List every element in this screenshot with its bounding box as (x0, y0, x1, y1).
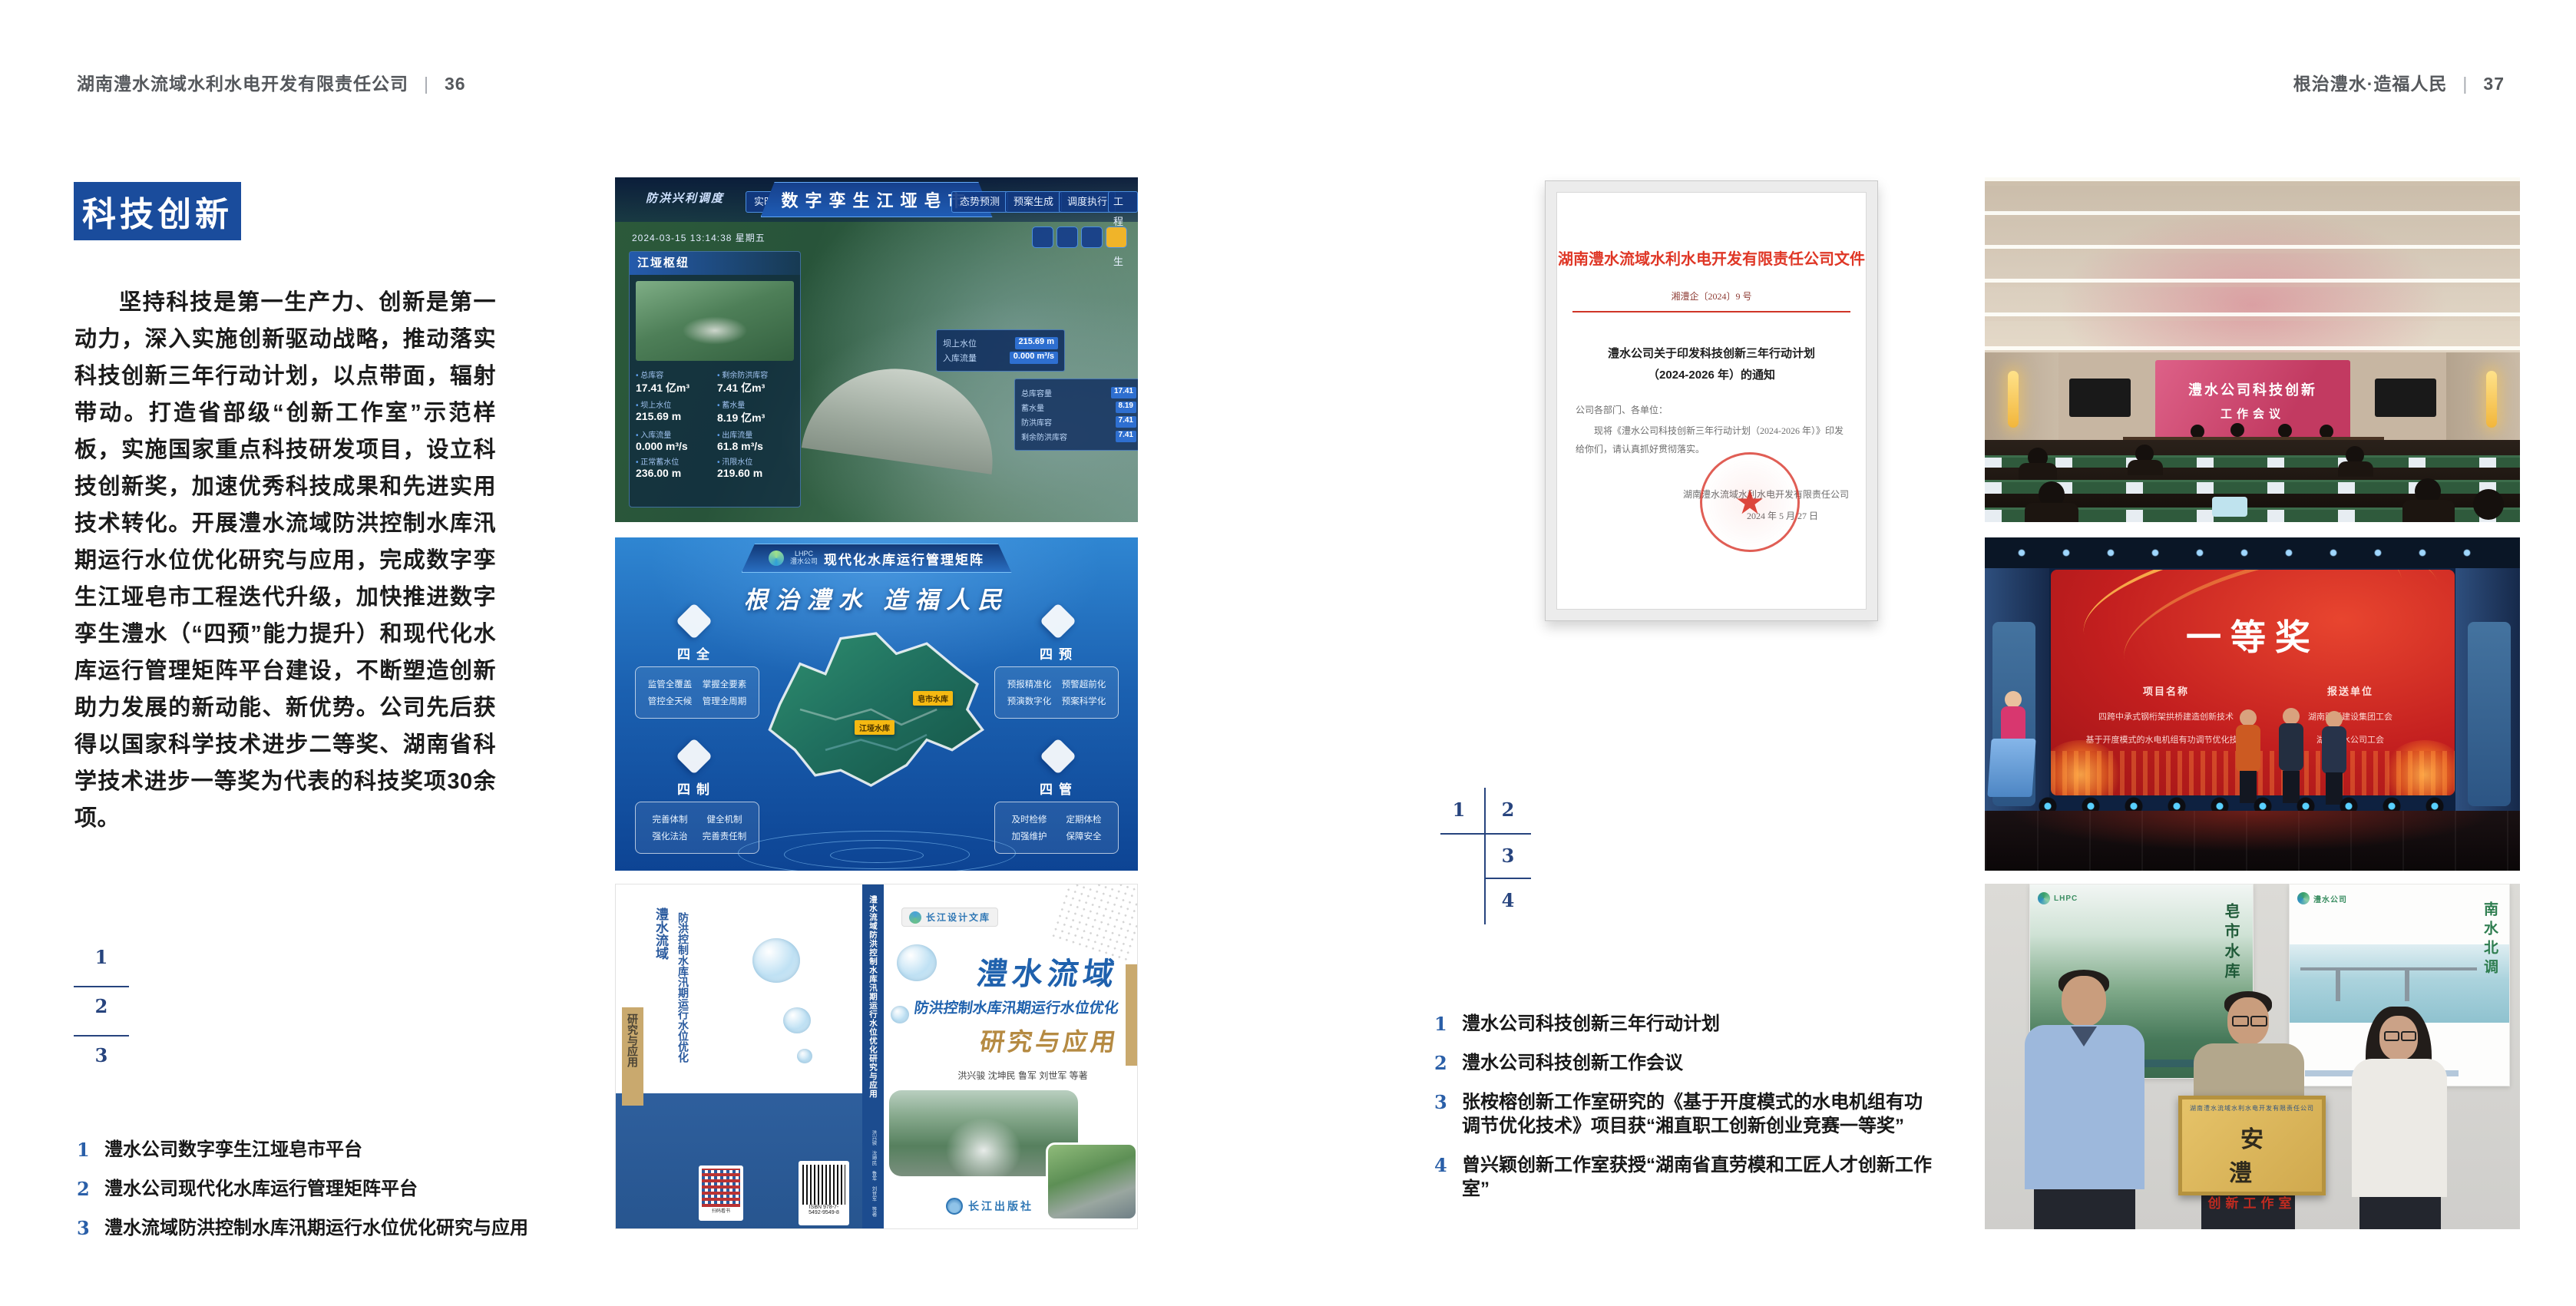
lhpc-logo-icon (2297, 892, 2310, 904)
header-separator: | (2462, 74, 2468, 94)
glasses-icon (2250, 1016, 2267, 1027)
publisher-icon (946, 1198, 963, 1215)
caption-row: 3 张桉榕创新工作室研究的《基于开度模式的水电机组有功调节优化技术》项目获“湘直… (1434, 1090, 1953, 1138)
award-col-header: 报送单位 (2258, 683, 2442, 698)
document-title: 澧水公司关于印发科技创新三年行动计划（2024-2026 年）的通知 (1557, 343, 1866, 386)
document-body: 现将《澧水公司科技创新三年行动计划（2024-2026 年）》印发给你们，请认真… (1576, 422, 1847, 458)
matrix-group-name: 四制 (650, 779, 742, 798)
poster-bridge-deck (2300, 967, 2477, 970)
caption-row: 1 澧水公司科技创新三年行动计划 (1434, 1012, 1953, 1036)
meeting-ceiling (1985, 177, 2520, 360)
caption-row: 2 澧水公司科技创新工作会议 (1434, 1051, 1953, 1075)
platform-title: 数字孪生江垭皂市 (781, 187, 971, 212)
photo-book-cover: 澧水流域 防洪控制水库汛期运行水位优化 研究与应用 扫码看书 ISBN 978-… (615, 884, 1138, 1229)
awardee-head (2283, 708, 2300, 725)
map-label: 江垭水库 (855, 720, 894, 735)
company-seal: ★ (1700, 452, 1800, 552)
platform-timestamp: 2024-03-15 13:14:38 星期五 (632, 231, 766, 244)
lhpc-logo-icon (2038, 892, 2050, 904)
stat-item: 出库流量61.8 m³/s (717, 428, 794, 452)
document-number: 湘澧企〔2024〕9 号 (1557, 289, 1866, 303)
awardee-body-suit (2322, 726, 2346, 774)
person-pants (2034, 1189, 2135, 1229)
figure-index-divider (74, 1035, 129, 1037)
matrix-group-card: 及时检修定期体检 加强维护保障安全 (994, 802, 1119, 854)
plaque-title: 安 澧 (2182, 1120, 2322, 1188)
caption-number: 3 (77, 1216, 104, 1240)
awardee-body-suit (2279, 723, 2303, 771)
powerhouse-photo (1046, 1142, 1138, 1221)
map-label: 皂市水库 (913, 691, 953, 706)
meeting-pillar (1985, 352, 2058, 445)
matrix-group-name: 四管 (1013, 779, 1105, 798)
award-title: 一等奖 (2051, 610, 2455, 660)
matrix-group-icon (1040, 738, 1076, 775)
stage-lights-row (2015, 547, 2489, 559)
figure-index-1: 1 (1445, 798, 1473, 821)
water-drop-decoration (783, 1007, 811, 1033)
matrix-group-icon (676, 738, 713, 775)
side-row: 防洪库容7.41 (1021, 416, 1136, 428)
meeting-pillar (2446, 352, 2520, 445)
wall-lamp (2486, 371, 2497, 428)
ring-decoration (830, 848, 924, 863)
book-authors: 洪兴骏 沈坤民 鲁军 刘世军 等著 (923, 1069, 1123, 1082)
photo-innovation-studio-plaque: LHPC 皂市水库 澧水公司 南水北调 (1985, 884, 2520, 1229)
chip-row: 坝上水位215.69 m (943, 337, 1058, 349)
desk-row (1985, 455, 2520, 468)
matrix-title: 现代化水库运行管理矩阵 (824, 549, 984, 568)
figure-index-divider (74, 986, 129, 987)
publisher-logo: 长江出版社 (946, 1198, 1033, 1215)
person-body-blue-polo (2025, 1025, 2144, 1189)
platform-tab: 调度执行 (1059, 191, 1116, 213)
glasses-icon (2232, 1016, 2249, 1027)
awardee-body-orange (2236, 725, 2260, 772)
document-masthead: 湖南澧水流域水利水电开发有限责任公司文件 (1557, 246, 1866, 269)
header-company: 湖南澧水流域水利水电开发有限责任公司 (77, 74, 408, 94)
photo-innovation-meeting: 澧水公司科技创新 工作会议 (1985, 177, 2520, 522)
matrix-group-card: 完善体制健全机制 强化法治完善责任制 (635, 802, 759, 854)
section-title: 科技创新 (82, 187, 233, 236)
poster-bridge-pier (2336, 970, 2340, 1001)
back-title-main: 澧水流域 (651, 908, 670, 1007)
award-col-header: 项目名称 (2074, 683, 2258, 698)
caption-number: 1 (1434, 1012, 1462, 1036)
innovation-studio-plaque: 湖南澧水流域水利水电开发有限责任公司 安 澧 创新工作室 (2178, 1096, 2326, 1195)
caption-number: 4 (1434, 1153, 1462, 1177)
stat-item: 入库流量0.000 m³/s (636, 428, 713, 452)
attendee-shoulders (2402, 500, 2455, 522)
chip-row: 入库流量0.000 m³/s (943, 352, 1058, 364)
caption-row: 1 澧水公司数字孪生江垭皂市平台 (77, 1138, 553, 1162)
caption-text: 曾兴颖创新工作室获授“湖南省直劳模和工匠人才创新工作室” (1462, 1153, 1953, 1201)
caption-text: 澧水公司现代化水库运行管理矩阵平台 (104, 1177, 418, 1201)
photo-official-document: 湖南澧水流域水利水电开发有限责任公司文件 湘澧企〔2024〕9 号 澧水公司关于… (1545, 180, 1878, 621)
tissue-box (2212, 497, 2247, 517)
side-row: 总库容量17.41 (1021, 387, 1136, 398)
attendee-head (2473, 489, 2504, 520)
qr-code: 扫码看书 (699, 1165, 743, 1221)
front-title-sub: 防洪控制水库汛期运行水位优化 (913, 997, 1120, 1017)
platform-stats-grid: 总库容17.41 亿m³ 剩余防洪库容7.41 亿m³ 坝上水位215.69 m… (630, 367, 800, 481)
page-number-right: 37 (2483, 74, 2505, 94)
caption-text: 澧水公司科技创新工作会议 (1462, 1051, 1683, 1075)
figure-index-divider (1440, 833, 1531, 835)
platform-menu-label: 防洪兴利调度 (646, 190, 724, 206)
front-title-main: 澧水流域 (974, 949, 1122, 994)
award-project: 基于开度模式的水电机组有功调节优化技术 (2074, 733, 2258, 746)
photo-matrix-platform: LHPC澧水公司 现代化水库运行管理矩阵 根治澧水 造福人民 皂市水库 江垭水库… (615, 537, 1138, 871)
document-salutation: 公司各部门、各单位： (1576, 403, 1668, 416)
glasses-icon (2384, 1031, 2399, 1041)
magazine-spread: 湖南澧水流域水利水电开发有限责任公司|36 科技创新 坚持科技是第一生产力、创新… (0, 0, 2576, 1306)
attendee-head (2278, 424, 2292, 438)
back-title-tail: 研究与应用 (625, 1013, 640, 1099)
header-separator: | (424, 74, 429, 94)
stage-side-screen (2468, 622, 2511, 806)
page-number-left: 36 (445, 74, 466, 94)
header-motto: 根治澧水·造福人民 (2293, 74, 2448, 94)
lhpc-logo-icon (769, 551, 784, 566)
spine-title: 澧水流域防洪控制水库汛期运行水位优化研究与应用 (868, 895, 879, 1126)
platform-toolbar-icon (1081, 226, 1103, 248)
figure-index-2: 2 (86, 995, 117, 1017)
header-right: 根治澧水·造福人民|37 (2293, 69, 2505, 95)
caption-row: 3 澧水流域防洪控制水库汛期运行水位优化研究与应用 (77, 1216, 553, 1240)
attendee-shoulders (2019, 463, 2057, 480)
wall-tv (2375, 379, 2436, 417)
water-drop-decoration (891, 1006, 909, 1023)
meeting-screen-line1: 澧水公司科技创新 (2188, 379, 2317, 399)
attendee-shoulders (2025, 503, 2078, 522)
person-body-white-tee (2352, 1059, 2447, 1197)
figure-index-1: 1 (86, 946, 117, 968)
caption-number: 2 (77, 1177, 104, 1201)
caption-text: 张桉榕创新工作室研究的《基于开度模式的水电机组有功调节优化技术》项目获“湘直职工… (1462, 1090, 1932, 1138)
person-pants (2359, 1197, 2441, 1229)
front-title-tail: 研究与应用 (978, 1023, 1121, 1058)
photo-award-ceremony: 一等奖 项目名称 四跨中承式钢桁架拱桥建造创新技术 基于开度模式的水电机组有功调… (1985, 537, 2520, 871)
water-drop-decoration (897, 944, 937, 981)
series-name: 长江设计文库 (926, 911, 990, 924)
plaque-subtitle: 创新工作室 (2182, 1192, 2322, 1212)
document-red-rule (1572, 311, 1850, 312)
poster-logo: 澧水公司 (2297, 892, 2347, 904)
host-podium (1987, 739, 2035, 797)
wall-tv (2069, 379, 2131, 417)
person-head (2062, 976, 2106, 1027)
platform-tab: 工程孪生 (1108, 191, 1138, 213)
caption-row: 4 曾兴颖创新工作室获授“湖南省直劳模和工匠人才创新工作室” (1434, 1153, 1953, 1201)
platform-panel-title: 江垭枢纽 (630, 252, 800, 275)
figure-index-divider (1484, 878, 1531, 879)
caption-text: 澧水流域防洪控制水库汛期运行水位优化研究与应用 (104, 1216, 528, 1240)
figure-index-4: 4 (1494, 889, 1522, 911)
awardee-head (2326, 711, 2343, 728)
platform-data-chip: 坝上水位215.69 m 入库流量0.000 m³/s (936, 329, 1065, 372)
platform-toolbar-icon (1057, 226, 1078, 248)
captions-left: 1 澧水公司数字孪生江垭皂市平台 2 澧水公司现代化水库运行管理矩阵平台 3 澧… (77, 1138, 553, 1255)
figure-index-divider (1484, 788, 1487, 924)
photo-digital-twin-platform: 防洪兴利调度 实时监测 洪水预报 防洪预警 数字孪生江垭皂市 态势预测 预案生成… (615, 177, 1138, 522)
side-row: 蓄水量8.19 (1021, 402, 1136, 413)
back-title-sub: 防洪控制水库汛期运行水位优化 (676, 912, 691, 1089)
plaque-header: 湖南澧水流域水利水电开发有限责任公司 (2182, 1104, 2322, 1113)
matrix-logo-text: LHPC澧水公司 (790, 551, 818, 566)
seal-star-icon: ★ (1734, 483, 1764, 522)
poster-bridge-pier (2405, 970, 2409, 1001)
stage-floor (1985, 811, 2520, 871)
platform-toolbar-icon (1106, 226, 1127, 248)
matrix-header-plate: LHPC澧水公司 现代化水库运行管理矩阵 (742, 544, 1012, 573)
attendee-shoulders (2338, 461, 2373, 477)
dam-illustration (802, 356, 1004, 474)
series-badge: 长江设计文库 (901, 908, 998, 927)
changjiang-design-icon (909, 911, 921, 924)
caption-number: 3 (1434, 1090, 1462, 1114)
matrix-group-card: 监管全覆盖掌握全要素 管控全天候管理全周期 (635, 666, 759, 719)
stat-item: 总库容17.41 亿m³ (636, 369, 713, 395)
stat-item: 正常蓄水位236.00 m (636, 455, 713, 479)
wall-lamp (2008, 371, 2019, 428)
attendee-shoulders (2128, 460, 2163, 475)
barcode: ISBN 978-7-5492-9549-8 (799, 1161, 849, 1225)
tan-block (1126, 964, 1138, 1066)
matrix-group-name: 四预 (1013, 643, 1105, 663)
matrix-group-name: 四全 (650, 643, 742, 663)
platform-left-panel: 江垭枢纽 总库容17.41 亿m³ 剩余防洪库容7.41 亿m³ 坝上水位215… (629, 251, 801, 508)
platform-toolbar-icon (1032, 226, 1053, 248)
side-row: 剩余防洪库容7.41 (1021, 431, 1136, 442)
stat-item: 坝上水位215.69 m (636, 398, 713, 425)
platform-side-panel: 总库容量17.41 蓄水量8.19 防洪库容7.41 剩余防洪库容7.41 (1014, 379, 1138, 451)
caption-row: 2 澧水公司现代化水库运行管理矩阵平台 (77, 1177, 553, 1201)
caption-number: 2 (1434, 1051, 1462, 1075)
poster-right-calligraphy: 南水北调 (2479, 901, 2500, 1032)
figure-index-2: 2 (1494, 798, 1522, 821)
water-drop-decoration (797, 1049, 812, 1063)
stat-item: 剩余防洪库容7.41 亿m³ (717, 369, 794, 395)
document-sheet: 湖南澧水流域水利水电开发有限责任公司文件 湘澧企〔2024〕9 号 澧水公司关于… (1556, 192, 1867, 610)
section-title-box: 科技创新 (74, 182, 241, 240)
header-left: 湖南澧水流域水利水电开发有限责任公司|36 (77, 69, 466, 95)
captions-right: 1 澧水公司科技创新三年行动计划 2 澧水公司科技创新工作会议 3 张桉榕创新工… (1434, 1012, 1953, 1216)
stat-item: 汛限水位219.60 m (717, 455, 794, 479)
poster-logo-text: 澧水公司 (2313, 893, 2347, 904)
body-paragraph: 坚持科技是第一生产力、创新是第一动力，深入实施创新驱动战略，推动落实科技创新三年… (74, 284, 496, 837)
poster-logo-text: LHPC (2054, 894, 2078, 903)
publisher-name: 长江出版社 (968, 1199, 1033, 1214)
book-spine: 澧水流域防洪控制水库汛期运行水位优化研究与应用 洪兴骏 沈坤民 鲁军 刘世军 等… (862, 884, 884, 1229)
awardee-head (2240, 709, 2257, 726)
caption-text: 澧水公司科技创新三年行动计划 (1462, 1012, 1720, 1036)
figure-index-3: 3 (1494, 845, 1522, 867)
dam-thumbnail (636, 281, 794, 361)
stat-item: 蓄水量8.19 亿m³ (717, 398, 794, 425)
matrix-group-card: 预报精准化预警超前化 预演数字化预案科学化 (994, 666, 1119, 719)
spine-authors: 洪兴骏 沈坤民 鲁军 刘世军 等著 (869, 1130, 877, 1222)
glasses-icon (2401, 1031, 2416, 1041)
poster-logo: LHPC (2038, 892, 2078, 904)
meeting-screen-line2: 工作会议 (2221, 405, 2285, 422)
basin-map-illustration (749, 608, 1003, 811)
host-head (2005, 691, 2022, 708)
water-drop-decoration (752, 938, 800, 983)
attendee-head (2230, 423, 2244, 437)
award-project: 四跨中承式钢桁架拱桥建造创新技术 (2074, 710, 2258, 722)
platform-tab: 预案生成 (1005, 191, 1062, 213)
caption-number: 1 (77, 1138, 104, 1162)
figure-index-3: 3 (86, 1044, 117, 1066)
platform-tab: 态势预测 (951, 191, 1008, 213)
caption-text: 澧水公司数字孪生江垭皂市平台 (104, 1138, 362, 1162)
